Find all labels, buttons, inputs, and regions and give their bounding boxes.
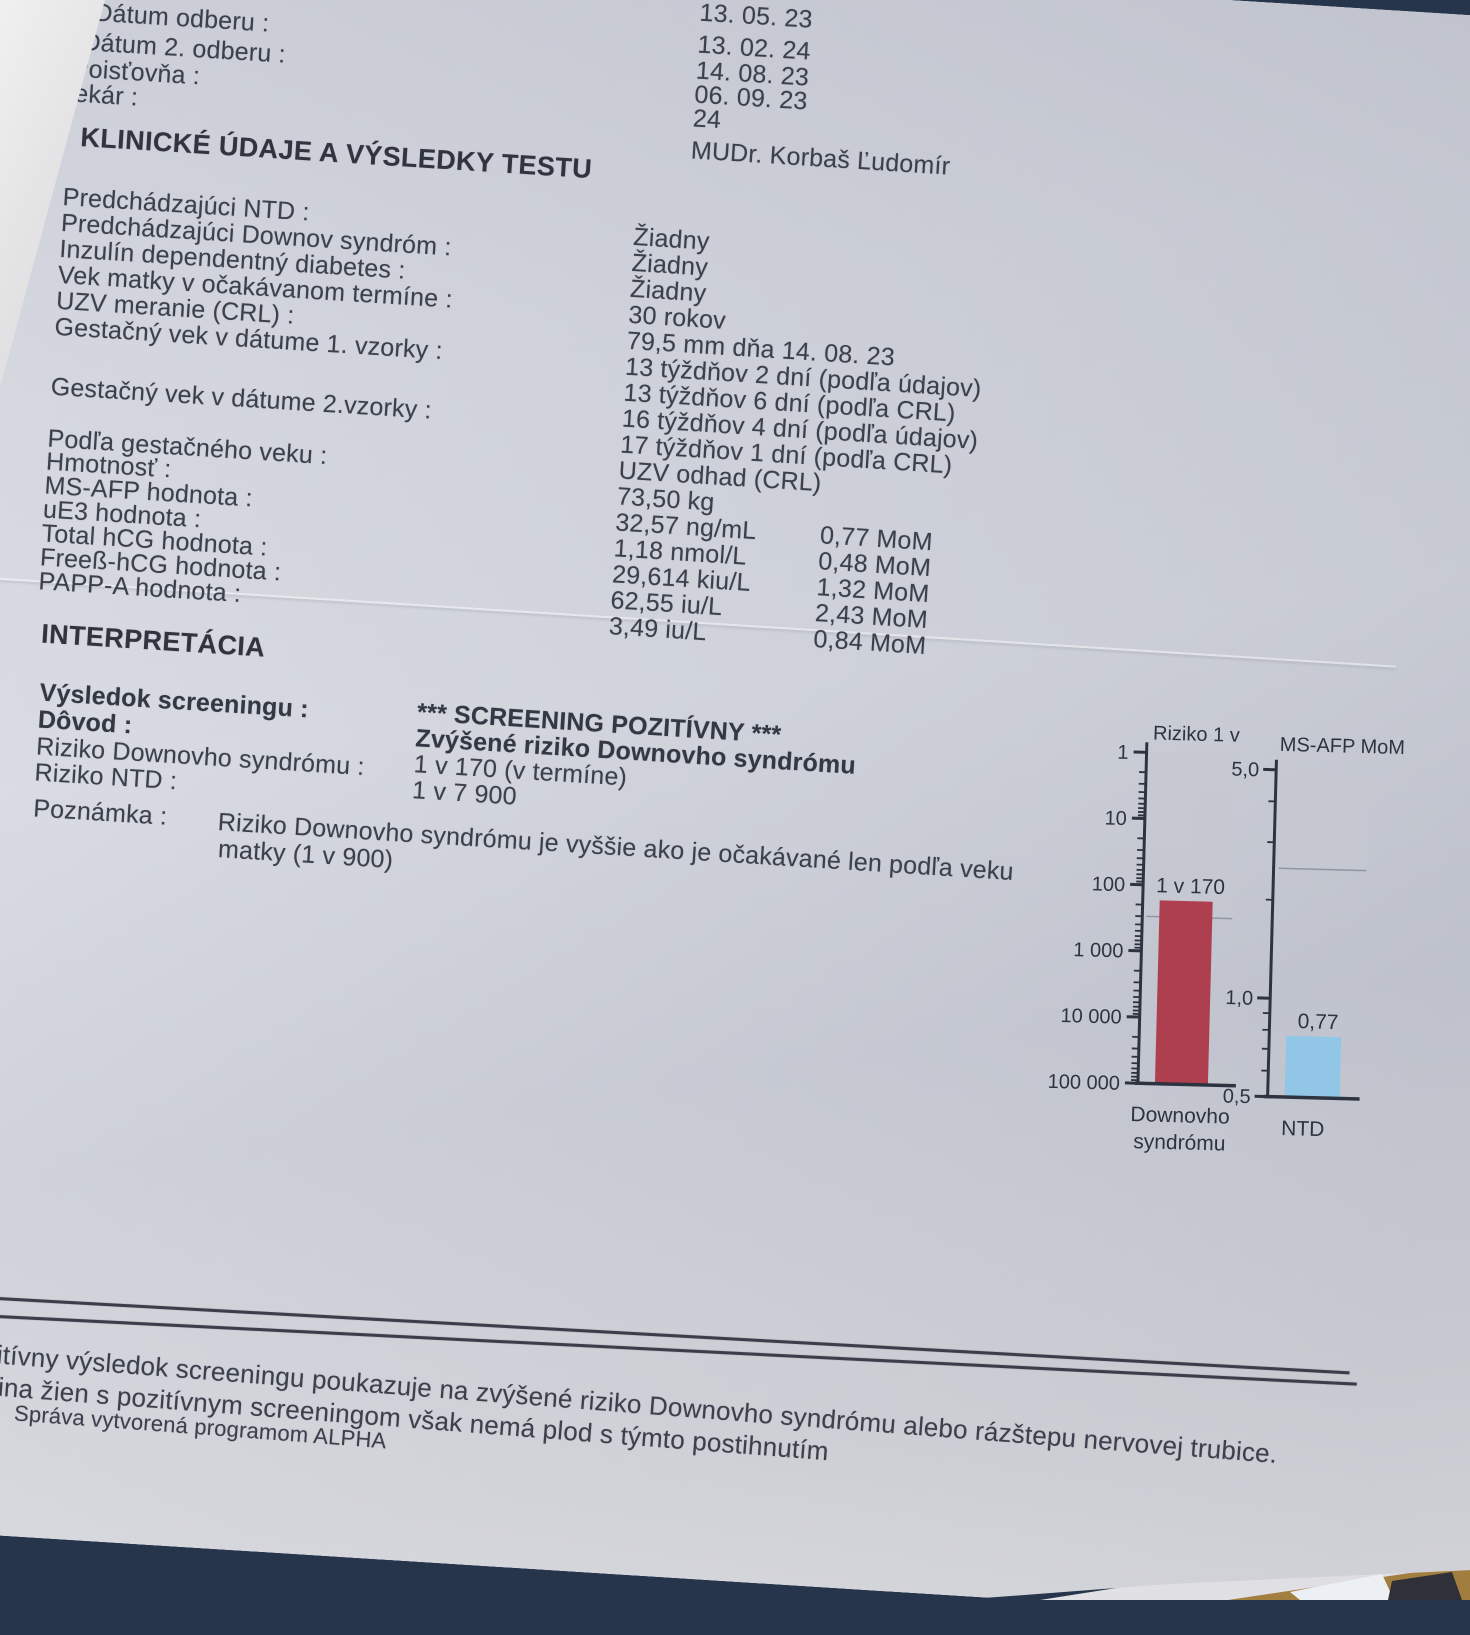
svg-text:10: 10	[1104, 807, 1127, 830]
clinical-value: 3,49 iu/L	[608, 612, 707, 647]
svg-text:Downovho: Downovho	[1130, 1103, 1230, 1129]
header-field-value: 24	[692, 104, 722, 135]
note-label: Poznámka :	[32, 794, 168, 831]
svg-text:5,0: 5,0	[1231, 759, 1259, 782]
mom-value: 0,84 MoM	[813, 625, 927, 661]
svg-text:syndrómu: syndrómu	[1133, 1130, 1226, 1155]
svg-text:MS-AFP MoM: MS-AFP MoM	[1280, 734, 1406, 759]
header-field-value: 13. 05. 23	[699, 0, 814, 35]
svg-text:0,5: 0,5	[1223, 1085, 1251, 1108]
clinical-label: Gestačný vek v dátume 2.vzorky :	[50, 373, 433, 426]
svg-text:NTD: NTD	[1281, 1117, 1325, 1141]
risk-ntd-value: 1 v 7 900	[411, 776, 517, 812]
risk-charts-svg: 1101001 00010 000100 000Riziko 1 v1 v 17…	[1005, 678, 1470, 1190]
risk-charts: 1101001 00010 000100 000Riziko 1 v1 v 17…	[1005, 678, 1470, 1190]
svg-text:Riziko 1 v: Riziko 1 v	[1153, 723, 1240, 747]
svg-text:1: 1	[1117, 742, 1129, 764]
svg-text:100 000: 100 000	[1047, 1071, 1120, 1095]
svg-text:0,77: 0,77	[1297, 1010, 1338, 1034]
svg-text:1 v 170: 1 v 170	[1156, 874, 1225, 899]
report-sheet: Dátum odberu : Dátum 2. odberu : Poisťov…	[0, 0, 1470, 1635]
svg-text:1 000: 1 000	[1073, 939, 1124, 962]
section-title-interpretation: INTERPRETÁCIA	[40, 619, 266, 664]
svg-text:100: 100	[1091, 873, 1125, 896]
svg-text:1,0: 1,0	[1225, 987, 1253, 1010]
svg-text:10 000: 10 000	[1060, 1005, 1122, 1029]
photo-of-lab-report: { "header": { "field_labels": ["Dátum od…	[0, 0, 1470, 1600]
section-title-clinical: KLINICKÉ ÚDAJE A VÝSLEDKY TESTU	[80, 122, 593, 185]
doctor-name: MUDr. Korbaš Ľudomír	[690, 136, 951, 181]
